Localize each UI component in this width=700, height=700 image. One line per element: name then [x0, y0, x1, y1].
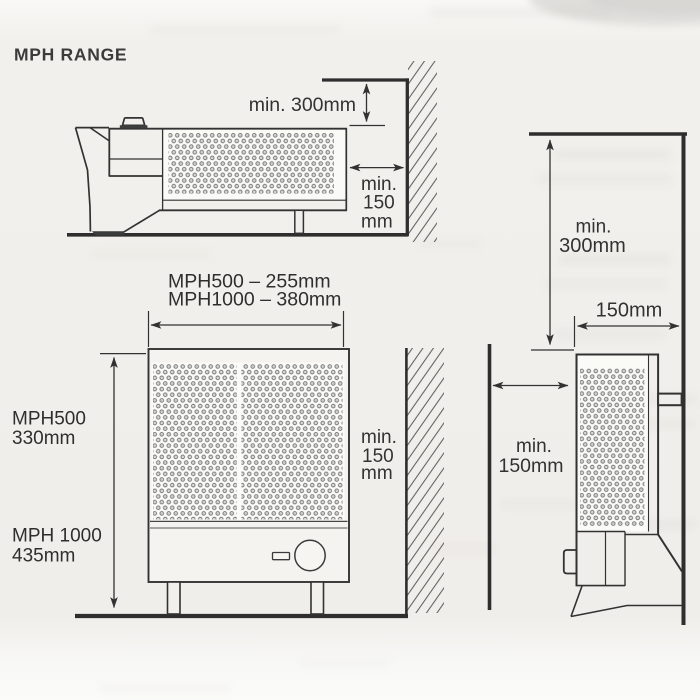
svg-text:150: 150: [363, 193, 395, 214]
svg-text:MPH1000 – 380mm: MPH1000 – 380mm: [168, 289, 341, 311]
svg-text:330mm: 330mm: [12, 428, 75, 449]
svg-text:MPH 1000: MPH 1000: [12, 526, 102, 547]
svg-text:MPH500: MPH500: [12, 409, 86, 430]
svg-text:min. 300mm: min. 300mm: [249, 94, 356, 116]
svg-text:300mm: 300mm: [559, 235, 626, 257]
svg-text:150mm: 150mm: [498, 455, 563, 477]
svg-text:mm: mm: [361, 212, 393, 233]
svg-text:435mm: 435mm: [12, 546, 75, 567]
svg-text:mm: mm: [361, 463, 393, 484]
svg-text:MPH RANGE: MPH RANGE: [14, 45, 127, 65]
svg-text:150mm: 150mm: [596, 299, 663, 321]
svg-text:min.: min.: [516, 436, 552, 457]
svg-text:min.: min.: [361, 427, 397, 448]
